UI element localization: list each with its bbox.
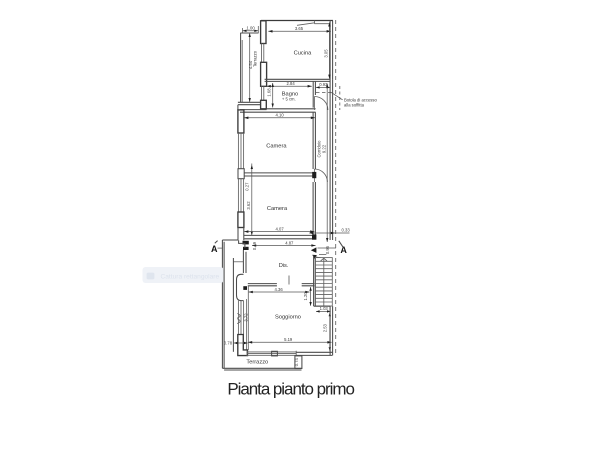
svg-text:0.27: 0.27 (245, 182, 250, 191)
svg-text:3.05: 3.05 (323, 49, 328, 58)
svg-text:3.72: 3.72 (243, 313, 248, 322)
svg-text:alla soffitta: alla soffitta (344, 103, 365, 108)
svg-text:0.33: 0.33 (342, 228, 351, 233)
svg-text:4.36: 4.36 (275, 287, 284, 292)
svg-text:Cucina: Cucina (294, 51, 313, 57)
svg-text:0.74: 0.74 (294, 357, 299, 366)
svg-text:A: A (340, 245, 347, 255)
svg-text:Terrazzo: Terrazzo (246, 359, 268, 365)
svg-text:0.78: 0.78 (224, 340, 233, 345)
svg-text:0.95: 0.95 (325, 245, 330, 254)
svg-text:1.20: 1.20 (303, 292, 308, 301)
svg-text:2.84: 2.84 (287, 81, 296, 86)
svg-text:1.03: 1.03 (320, 306, 329, 311)
svg-text:Soggiorno: Soggiorno (275, 315, 301, 321)
svg-text:4.10: 4.10 (276, 113, 285, 118)
svg-text:5.19: 5.19 (284, 337, 293, 342)
svg-text:3.62: 3.62 (246, 201, 251, 210)
svg-text:Corridoio: Corridoio (317, 140, 322, 158)
svg-text:Cattura rettangolare: Cattura rettangolare (161, 274, 220, 281)
svg-text:Dis.: Dis. (279, 263, 289, 269)
svg-text:9.22: 9.22 (322, 144, 327, 153)
svg-text:4.07: 4.07 (276, 226, 285, 231)
svg-text:Camera: Camera (266, 144, 287, 150)
svg-text:3.65: 3.65 (295, 26, 304, 31)
svg-text:A: A (211, 244, 218, 254)
svg-text:+ 5 cm.: + 5 cm. (282, 97, 296, 102)
svg-text:1.68: 1.68 (267, 88, 272, 97)
svg-text:Pianta pianto primo: Pianta pianto primo (227, 379, 354, 398)
svg-text:1.00: 1.00 (247, 25, 256, 30)
svg-text:2.53: 2.53 (322, 323, 327, 332)
svg-text:4.87: 4.87 (285, 240, 294, 245)
svg-text:Camera: Camera (267, 206, 288, 212)
svg-text:0.49: 0.49 (252, 241, 257, 250)
svg-text:Terrazzo: Terrazzo (252, 50, 257, 67)
